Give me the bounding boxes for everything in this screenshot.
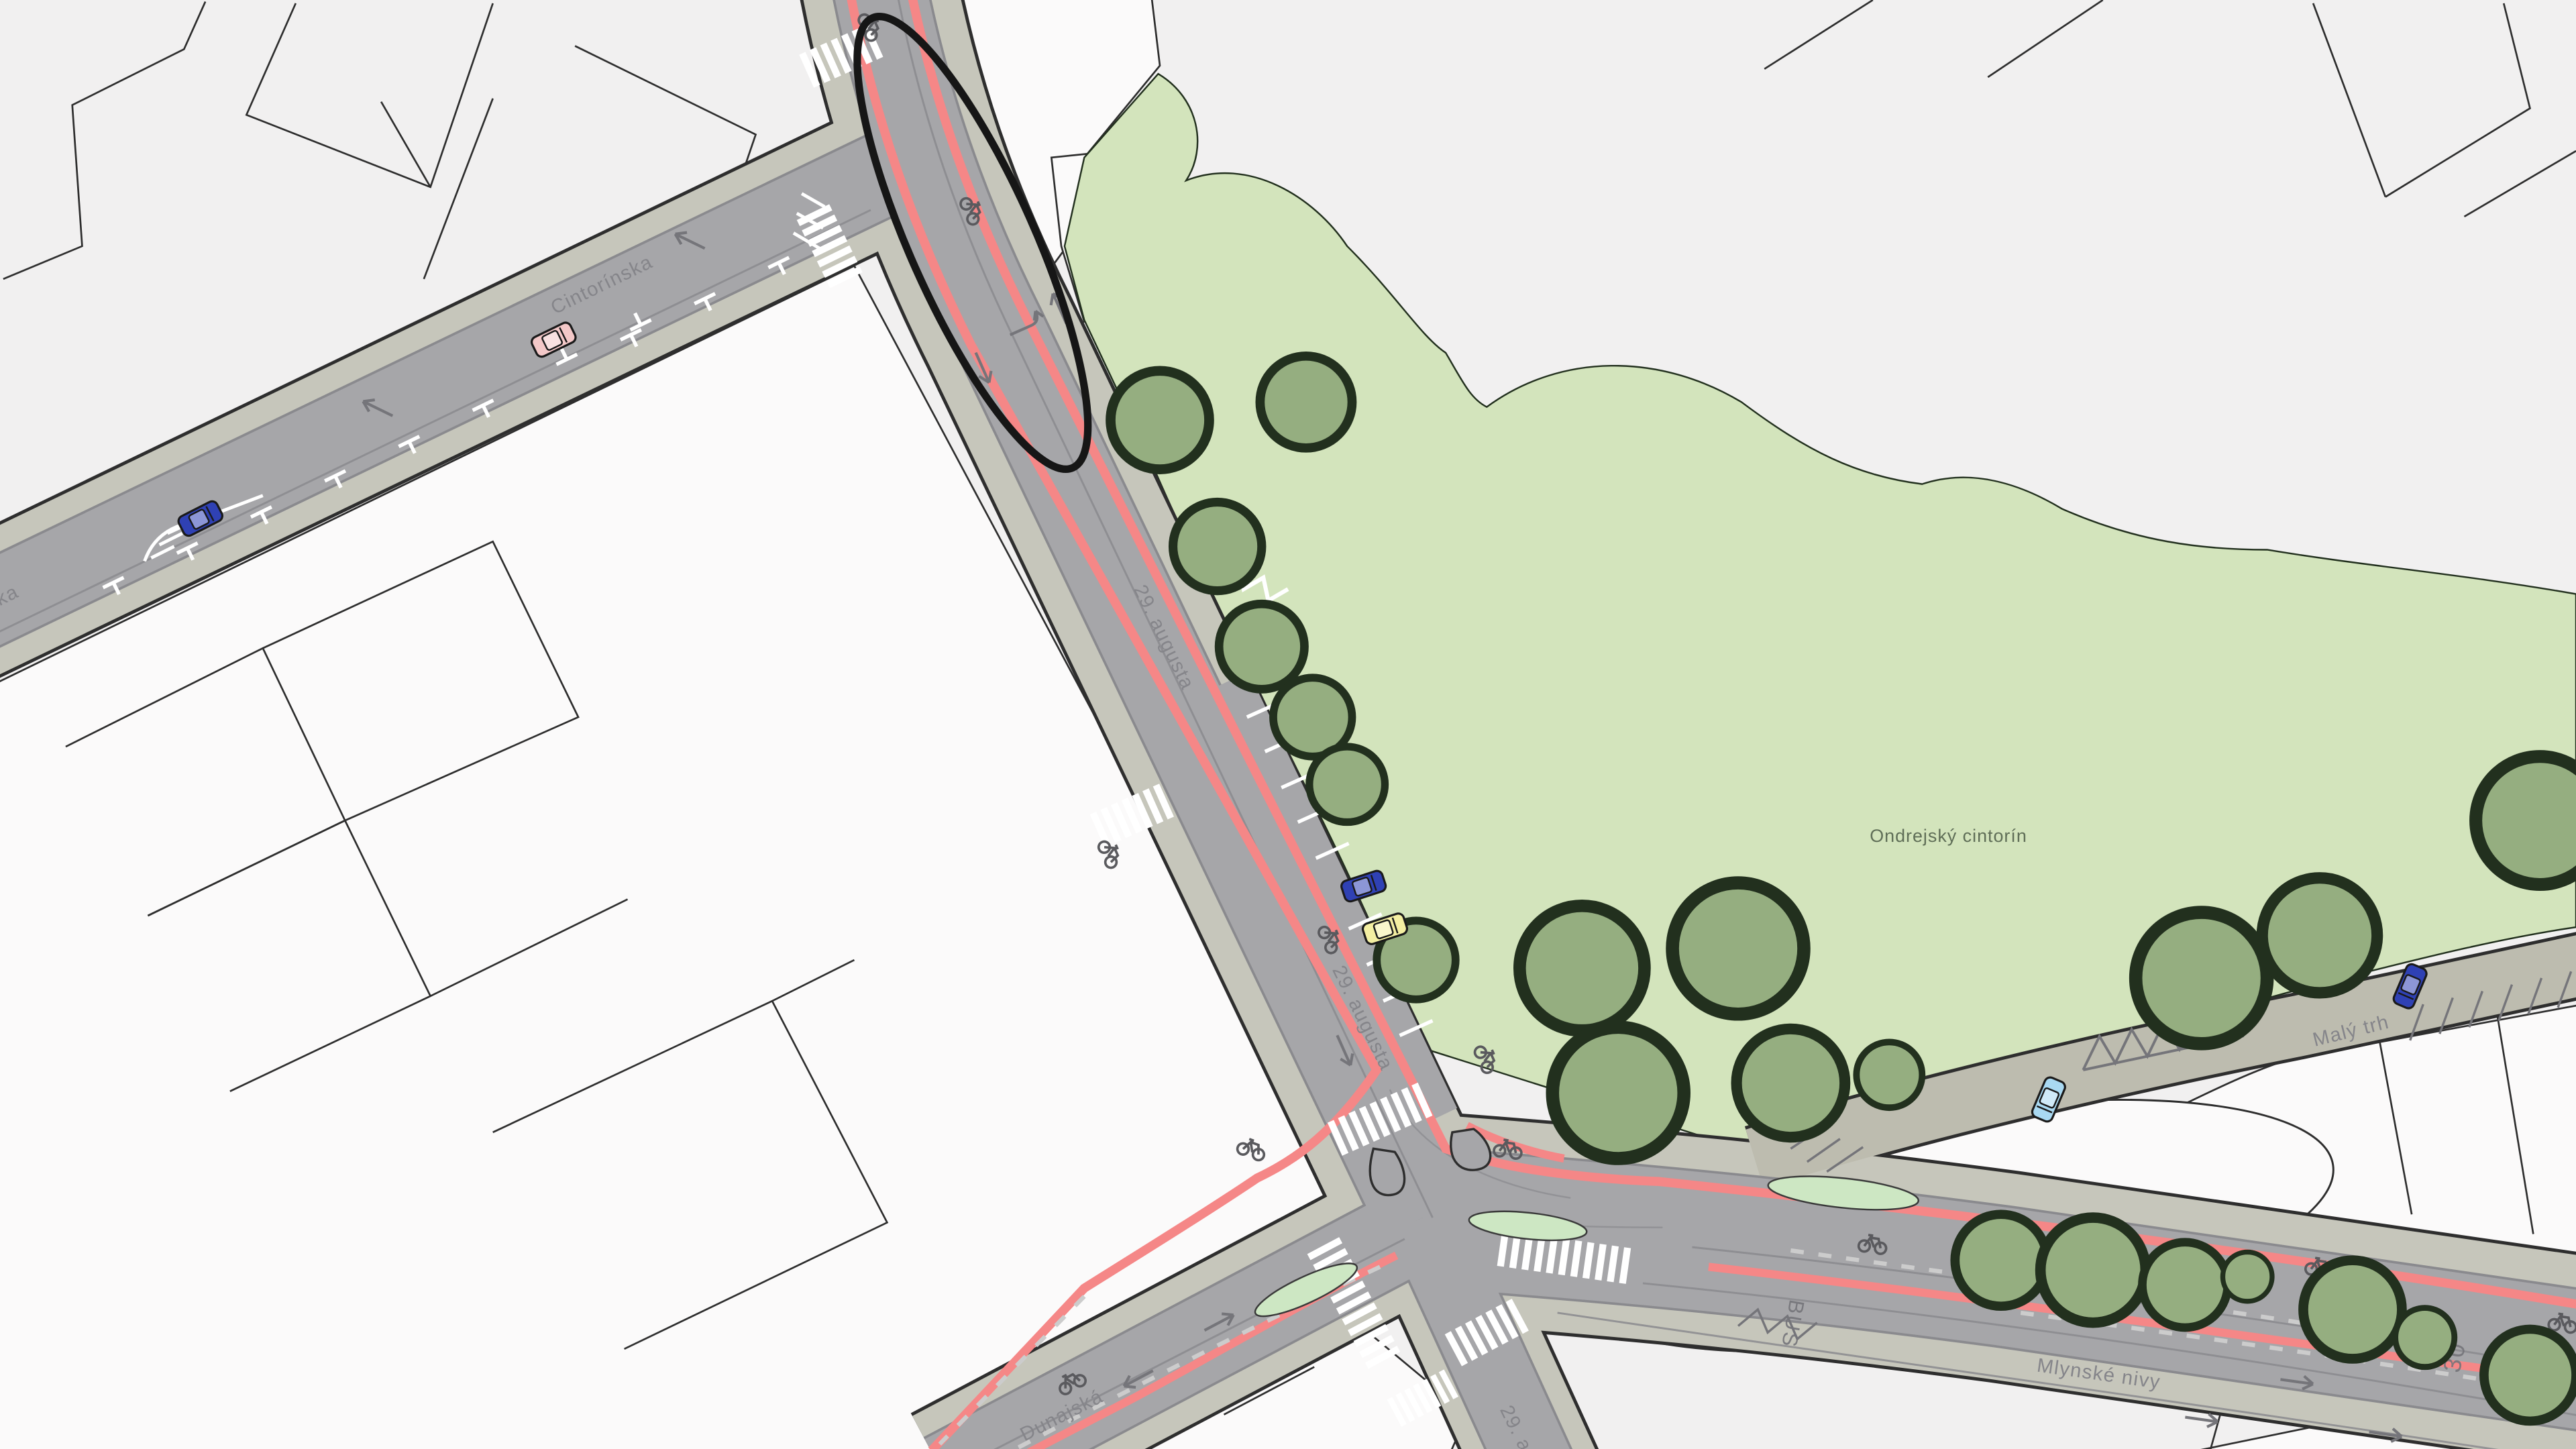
map-canvas: BUS 30 ZÓNA xyxy=(0,0,2576,1449)
label-cemetery: Ondrejský cintorín xyxy=(1870,826,2027,846)
